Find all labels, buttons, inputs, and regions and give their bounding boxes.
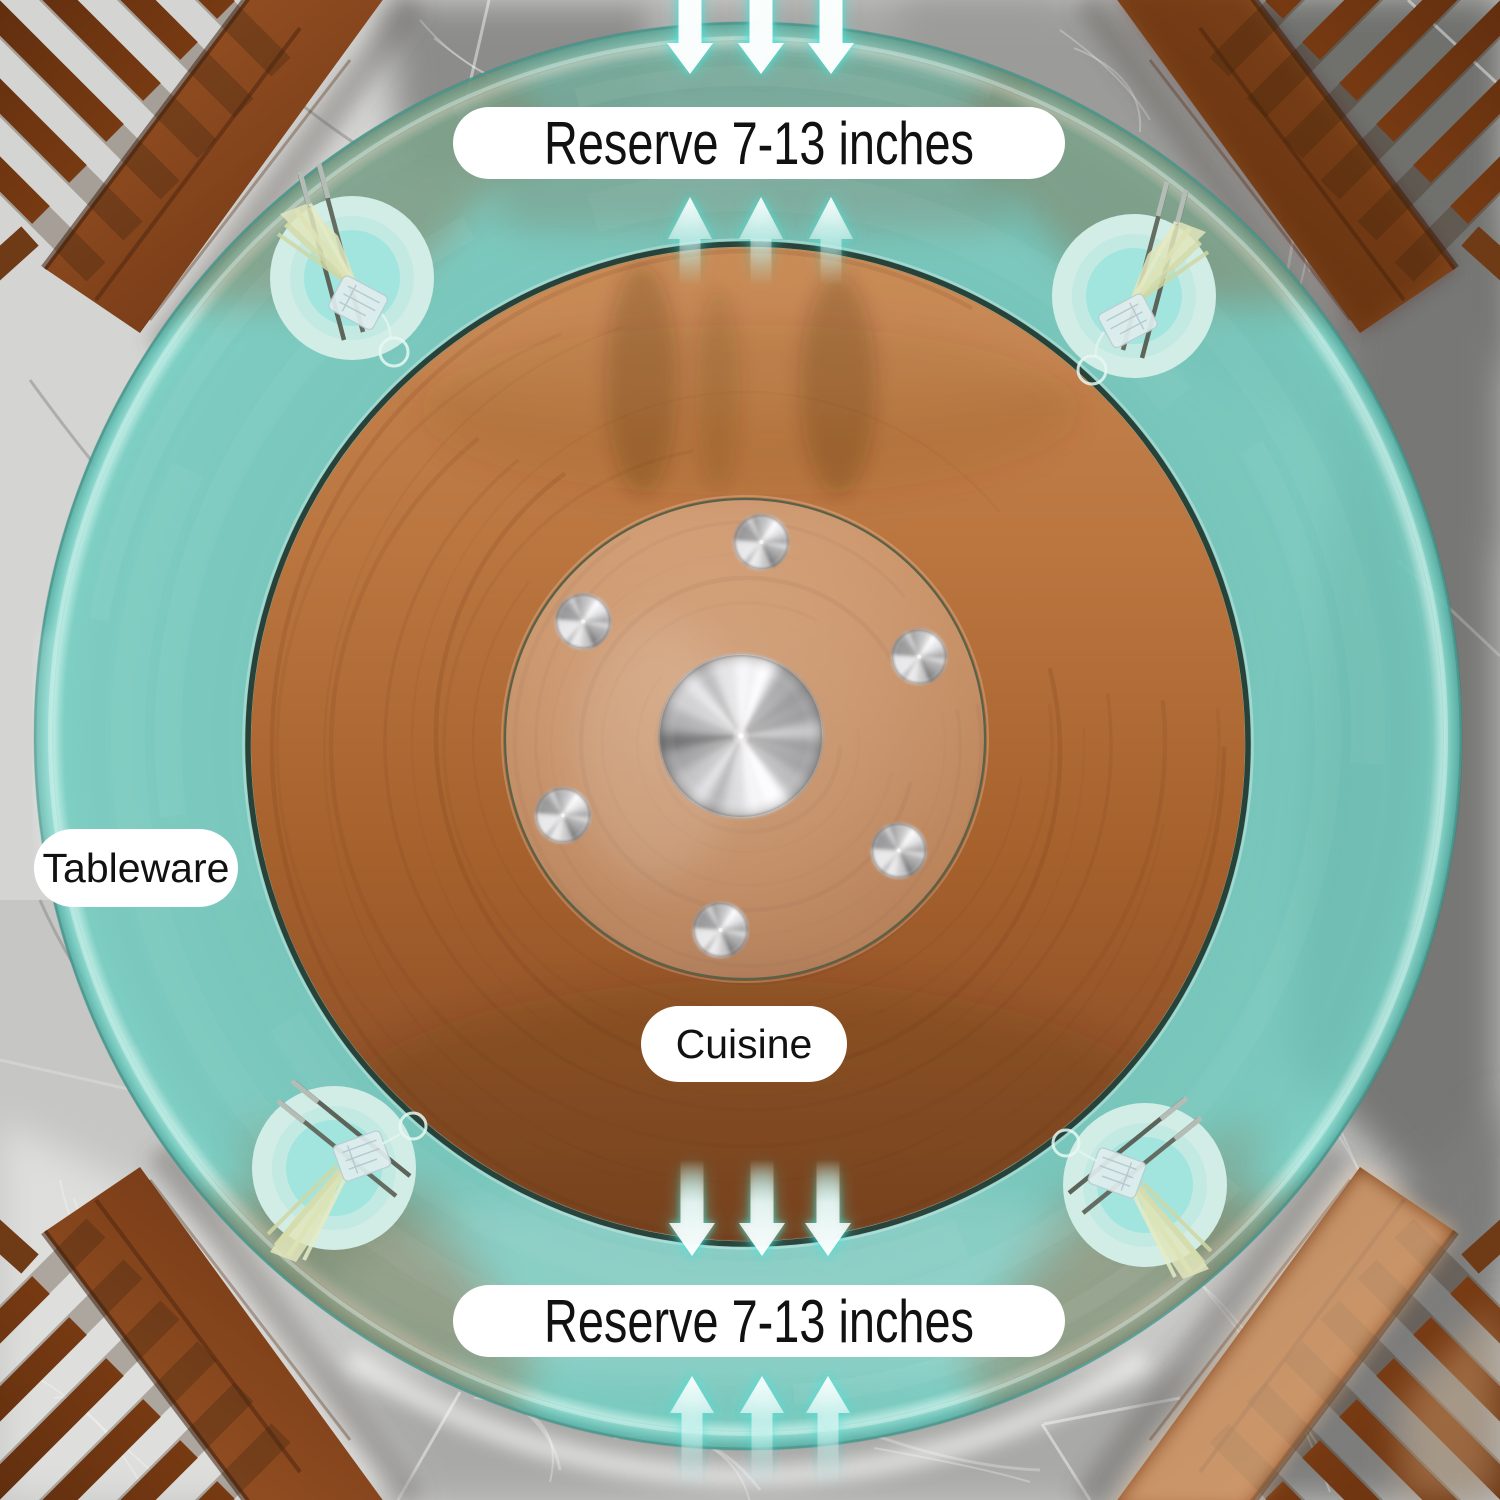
svg-text:Tableware: Tableware bbox=[43, 845, 230, 891]
svg-text:Reserve 7-13 inches: Reserve 7-13 inches bbox=[544, 110, 974, 177]
svg-text:Reserve 7-13 inches: Reserve 7-13 inches bbox=[544, 1288, 974, 1355]
svg-text:Cuisine: Cuisine bbox=[676, 1021, 813, 1067]
